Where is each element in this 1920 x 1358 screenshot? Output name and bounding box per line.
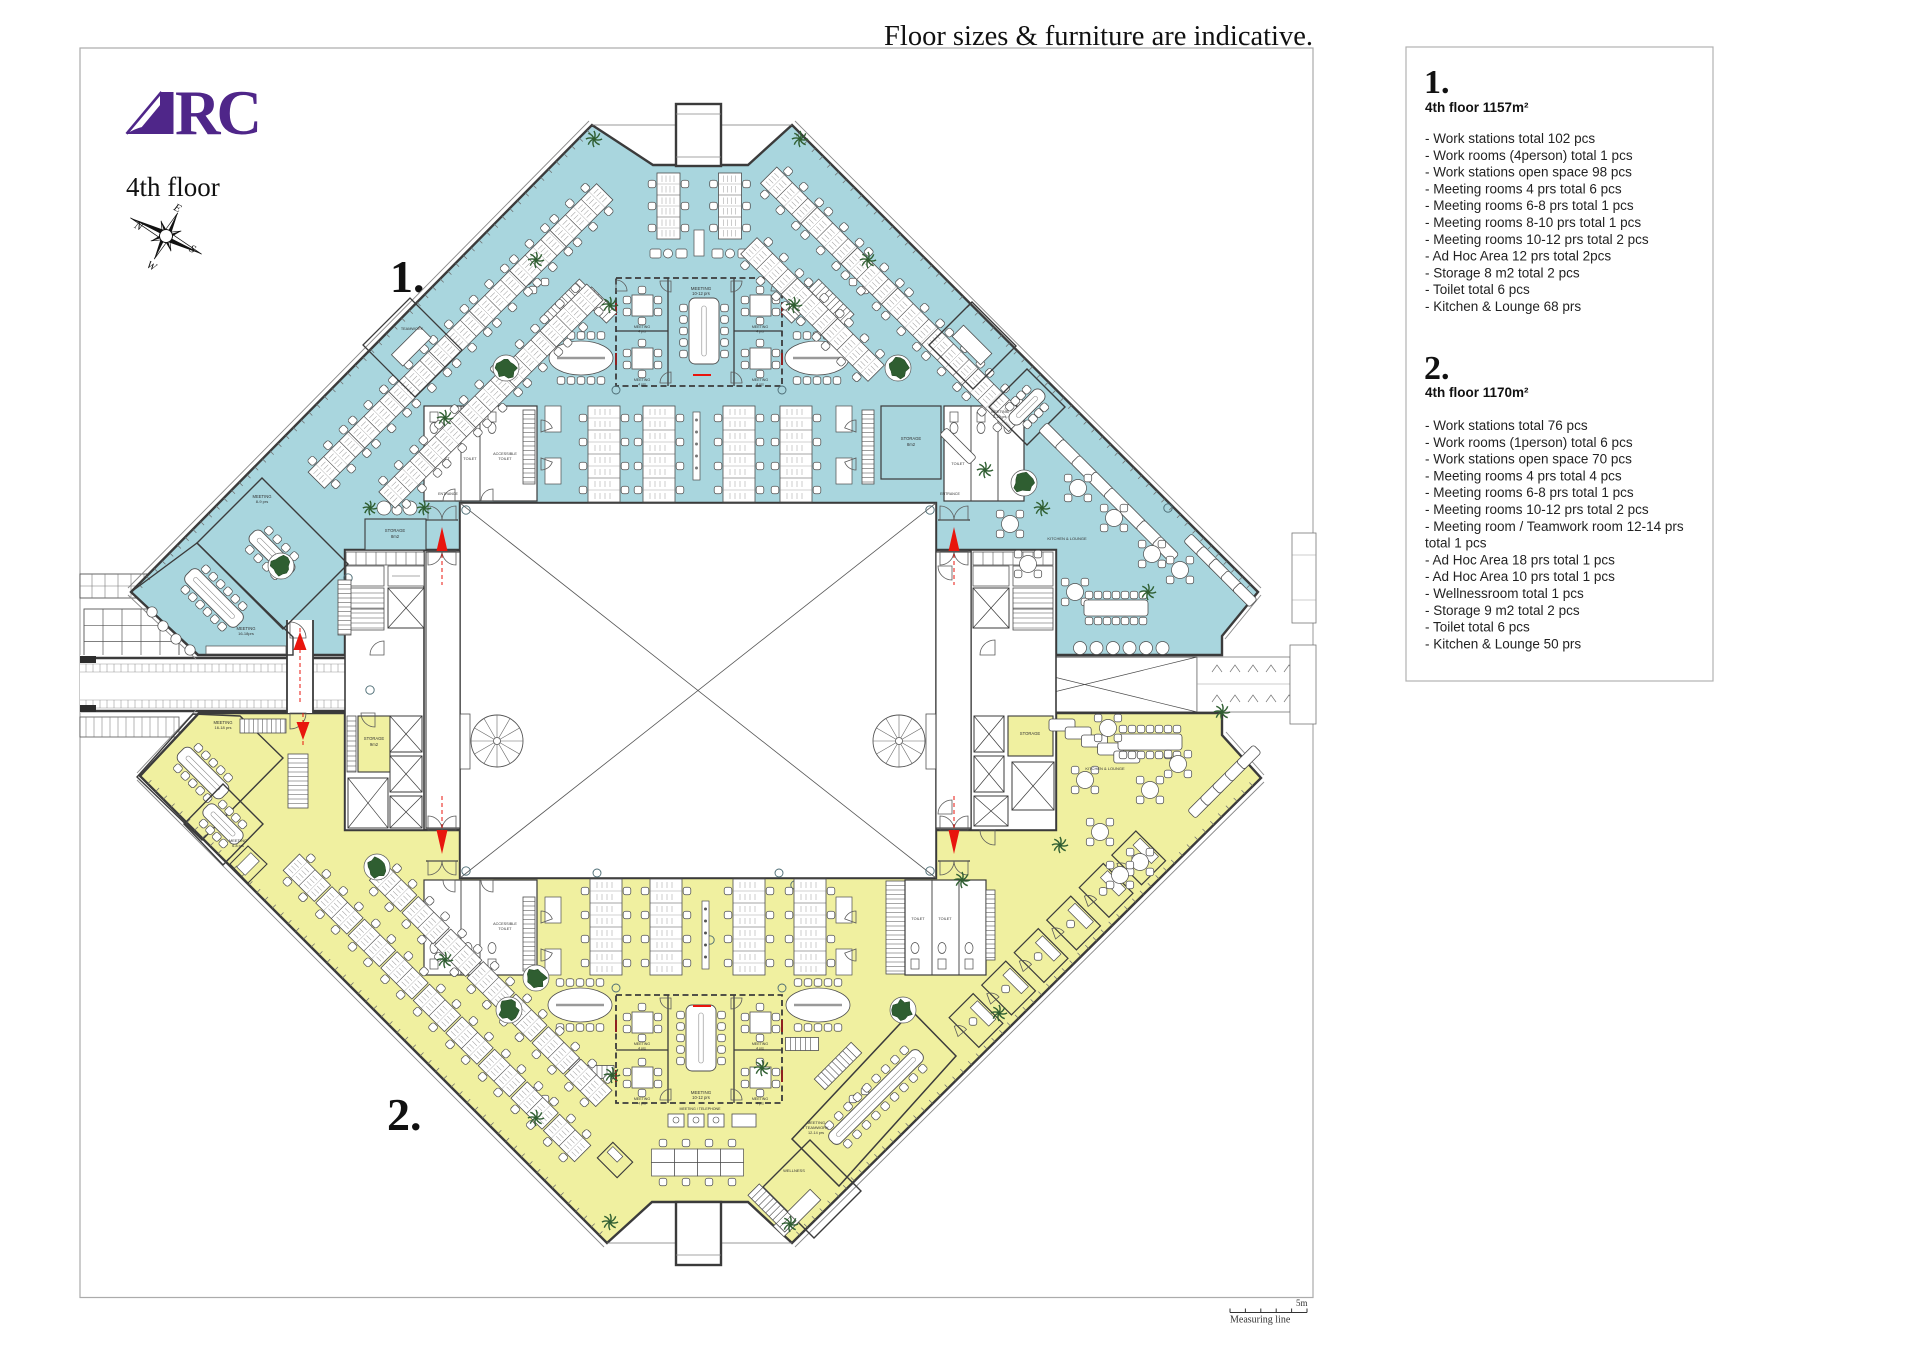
svg-text:4 prs: 4 prs bbox=[756, 1102, 764, 1106]
svg-text:4 prs: 4 prs bbox=[638, 330, 646, 334]
svg-text:STORAGE: STORAGE bbox=[1020, 731, 1041, 736]
svg-text:- Work stations total 76 pcs: - Work stations total 76 pcs bbox=[1425, 418, 1588, 433]
svg-text:RC: RC bbox=[175, 78, 258, 148]
svg-text:4 prs: 4 prs bbox=[756, 1047, 764, 1051]
svg-text:MEETING: MEETING bbox=[752, 1097, 769, 1101]
svg-text:- Work stations open space 98: - Work stations open space 98 pcs bbox=[1425, 165, 1632, 180]
svg-text:4 prs: 4 prs bbox=[638, 1102, 646, 1106]
svg-text:ACCESSIBLE: ACCESSIBLE bbox=[493, 452, 517, 456]
svg-text:5m: 5m bbox=[1296, 1298, 1308, 1308]
svg-text:MEETING: MEETING bbox=[634, 325, 651, 329]
svg-text:TOILET: TOILET bbox=[911, 917, 925, 921]
svg-text:- Meeting rooms 6-8 prs total: - Meeting rooms 6-8 prs total 1 pcs bbox=[1425, 198, 1634, 213]
svg-text:- Meeting rooms 4 prs total 4: - Meeting rooms 4 prs total 4 pcs bbox=[1425, 468, 1622, 483]
svg-text:- Work rooms (1person) total 6: - Work rooms (1person) total 6 pcs bbox=[1425, 435, 1633, 450]
svg-text:8m2: 8m2 bbox=[391, 534, 400, 539]
svg-text:KITCHEN & LOUNGE: KITCHEN & LOUNGE bbox=[1085, 766, 1125, 771]
svg-text:16-18 prs: 16-18 prs bbox=[215, 725, 232, 730]
svg-text:- Meeting rooms 6-8 prs total: - Meeting rooms 6-8 prs total 1 pcs bbox=[1425, 485, 1634, 500]
svg-text:- Kitchen & Lounge 68 prs: - Kitchen & Lounge 68 prs bbox=[1425, 299, 1581, 314]
svg-text:2.: 2. bbox=[1424, 350, 1450, 387]
svg-text:total 1 pcs: total 1 pcs bbox=[1425, 536, 1487, 551]
svg-text:STORAGE: STORAGE bbox=[364, 736, 385, 741]
svg-text:- Meeting rooms 4 prs total 6: - Meeting rooms 4 prs total 6 pcs bbox=[1425, 181, 1622, 196]
svg-text:MEETING: MEETING bbox=[991, 410, 1008, 414]
svg-text:4 prs: 4 prs bbox=[756, 383, 764, 387]
svg-text:- Storage 8 m2 total 2 pcs: - Storage 8 m2 total 2 pcs bbox=[1425, 265, 1580, 280]
svg-text:- Ad Hoc Area 18 prs total 1 p: - Ad Hoc Area 18 prs total 1 pcs bbox=[1425, 552, 1615, 567]
svg-text:MEETING: MEETING bbox=[229, 838, 247, 843]
svg-text:ENTRANCE: ENTRANCE bbox=[438, 492, 458, 496]
svg-text:TOILET: TOILET bbox=[951, 462, 965, 466]
svg-text:- Wellnessroom total 1 pcs: - Wellnessroom total 1 pcs bbox=[1425, 586, 1584, 601]
svg-text:TEAMWORK: TEAMWORK bbox=[401, 327, 424, 331]
svg-text:- Meeting room / Teamwork room: - Meeting room / Teamwork room 12-14 prs bbox=[1425, 519, 1684, 534]
svg-text:- Work stations total 102 pcs: - Work stations total 102 pcs bbox=[1425, 131, 1595, 146]
svg-text:MEETING: MEETING bbox=[634, 1042, 651, 1046]
svg-text:- Meeting rooms 10-12 prs tota: - Meeting rooms 10-12 prs total 2 pcs bbox=[1425, 232, 1649, 247]
svg-text:- Kitchen & Lounge 50 prs: - Kitchen & Lounge 50 prs bbox=[1425, 636, 1581, 651]
svg-text:MEETING: MEETING bbox=[752, 378, 769, 382]
svg-text:- Meeting rooms 10-12 prs tota: - Meeting rooms 10-12 prs total 2 pcs bbox=[1425, 502, 1649, 517]
svg-text:4 prs: 4 prs bbox=[638, 1047, 646, 1051]
svg-text:- Work stations open space 70: - Work stations open space 70 pcs bbox=[1425, 452, 1632, 467]
svg-text:10-12 prs: 10-12 prs bbox=[692, 1095, 710, 1100]
svg-text:4th floor 1170m²: 4th floor 1170m² bbox=[1425, 385, 1529, 400]
svg-text:10-12 prs: 10-12 prs bbox=[692, 291, 710, 296]
svg-text:KITCHEN & LOUNGE: KITCHEN & LOUNGE bbox=[1047, 536, 1087, 541]
svg-text:4th floor: 4th floor bbox=[126, 172, 220, 202]
svg-text:STORAGE: STORAGE bbox=[385, 528, 406, 533]
svg-text:WELLNESS: WELLNESS bbox=[783, 1168, 805, 1173]
svg-text:- Meeting rooms 8-10 prs total: - Meeting rooms 8-10 prs total 1 pcs bbox=[1425, 215, 1641, 230]
svg-text:ACCESSIBLE: ACCESSIBLE bbox=[493, 922, 517, 926]
svg-text:Floor sizes & furniture are in: Floor sizes & furniture are indicative. bbox=[884, 21, 1313, 52]
svg-text:Measuring line: Measuring line bbox=[1230, 1315, 1291, 1326]
svg-text:- Work rooms (4person) total 1: - Work rooms (4person) total 1 pcs bbox=[1425, 148, 1633, 163]
svg-text:4 prs: 4 prs bbox=[638, 383, 646, 387]
svg-text:8-10 prs: 8-10 prs bbox=[993, 415, 1006, 419]
svg-text:1.: 1. bbox=[1424, 64, 1450, 101]
svg-text:ENTRANCE: ENTRANCE bbox=[940, 492, 960, 496]
svg-text:8m2: 8m2 bbox=[907, 442, 916, 447]
svg-text:TOILET: TOILET bbox=[463, 457, 477, 461]
svg-text:8-9 prs: 8-9 prs bbox=[256, 499, 268, 504]
svg-text:MEETING: MEETING bbox=[752, 325, 769, 329]
svg-text:MEETING: MEETING bbox=[634, 378, 651, 382]
svg-text:/ TEAMWORK: / TEAMWORK bbox=[803, 1125, 829, 1130]
svg-text:6-8 prs: 6-8 prs bbox=[232, 844, 244, 848]
svg-text:16-18prs: 16-18prs bbox=[238, 631, 254, 636]
svg-text:MEETING / TELEPHONE: MEETING / TELEPHONE bbox=[679, 1107, 721, 1111]
svg-text:- Ad Hoc Area 10 prs total 1 p: - Ad Hoc Area 10 prs total 1 pcs bbox=[1425, 569, 1615, 584]
svg-text:STORAGE: STORAGE bbox=[901, 436, 922, 441]
svg-text:- Toilet total 6 pcs: - Toilet total 6 pcs bbox=[1425, 282, 1530, 297]
svg-text:4th floor 1157m²: 4th floor 1157m² bbox=[1425, 100, 1529, 115]
svg-text:9m2: 9m2 bbox=[370, 742, 379, 747]
svg-text:TOILET: TOILET bbox=[498, 927, 512, 931]
svg-text:- Toilet total 6 pcs: - Toilet total 6 pcs bbox=[1425, 620, 1530, 635]
svg-text:TOILET: TOILET bbox=[498, 457, 512, 461]
svg-text:2.: 2. bbox=[387, 1089, 422, 1140]
svg-text:MEETING: MEETING bbox=[634, 1097, 651, 1101]
svg-text:- Ad Hoc Area 12 prs total 2pc: - Ad Hoc Area 12 prs total 2pcs bbox=[1425, 249, 1611, 264]
svg-text:MEETING: MEETING bbox=[752, 1042, 769, 1046]
svg-text:1.: 1. bbox=[390, 251, 425, 302]
svg-text:4 prs: 4 prs bbox=[756, 330, 764, 334]
svg-text:- Storage 9 m2 total 2 pcs: - Storage 9 m2 total 2 pcs bbox=[1425, 603, 1580, 618]
svg-text:TOILET: TOILET bbox=[938, 917, 952, 921]
svg-text:12-14 prs: 12-14 prs bbox=[808, 1131, 824, 1135]
